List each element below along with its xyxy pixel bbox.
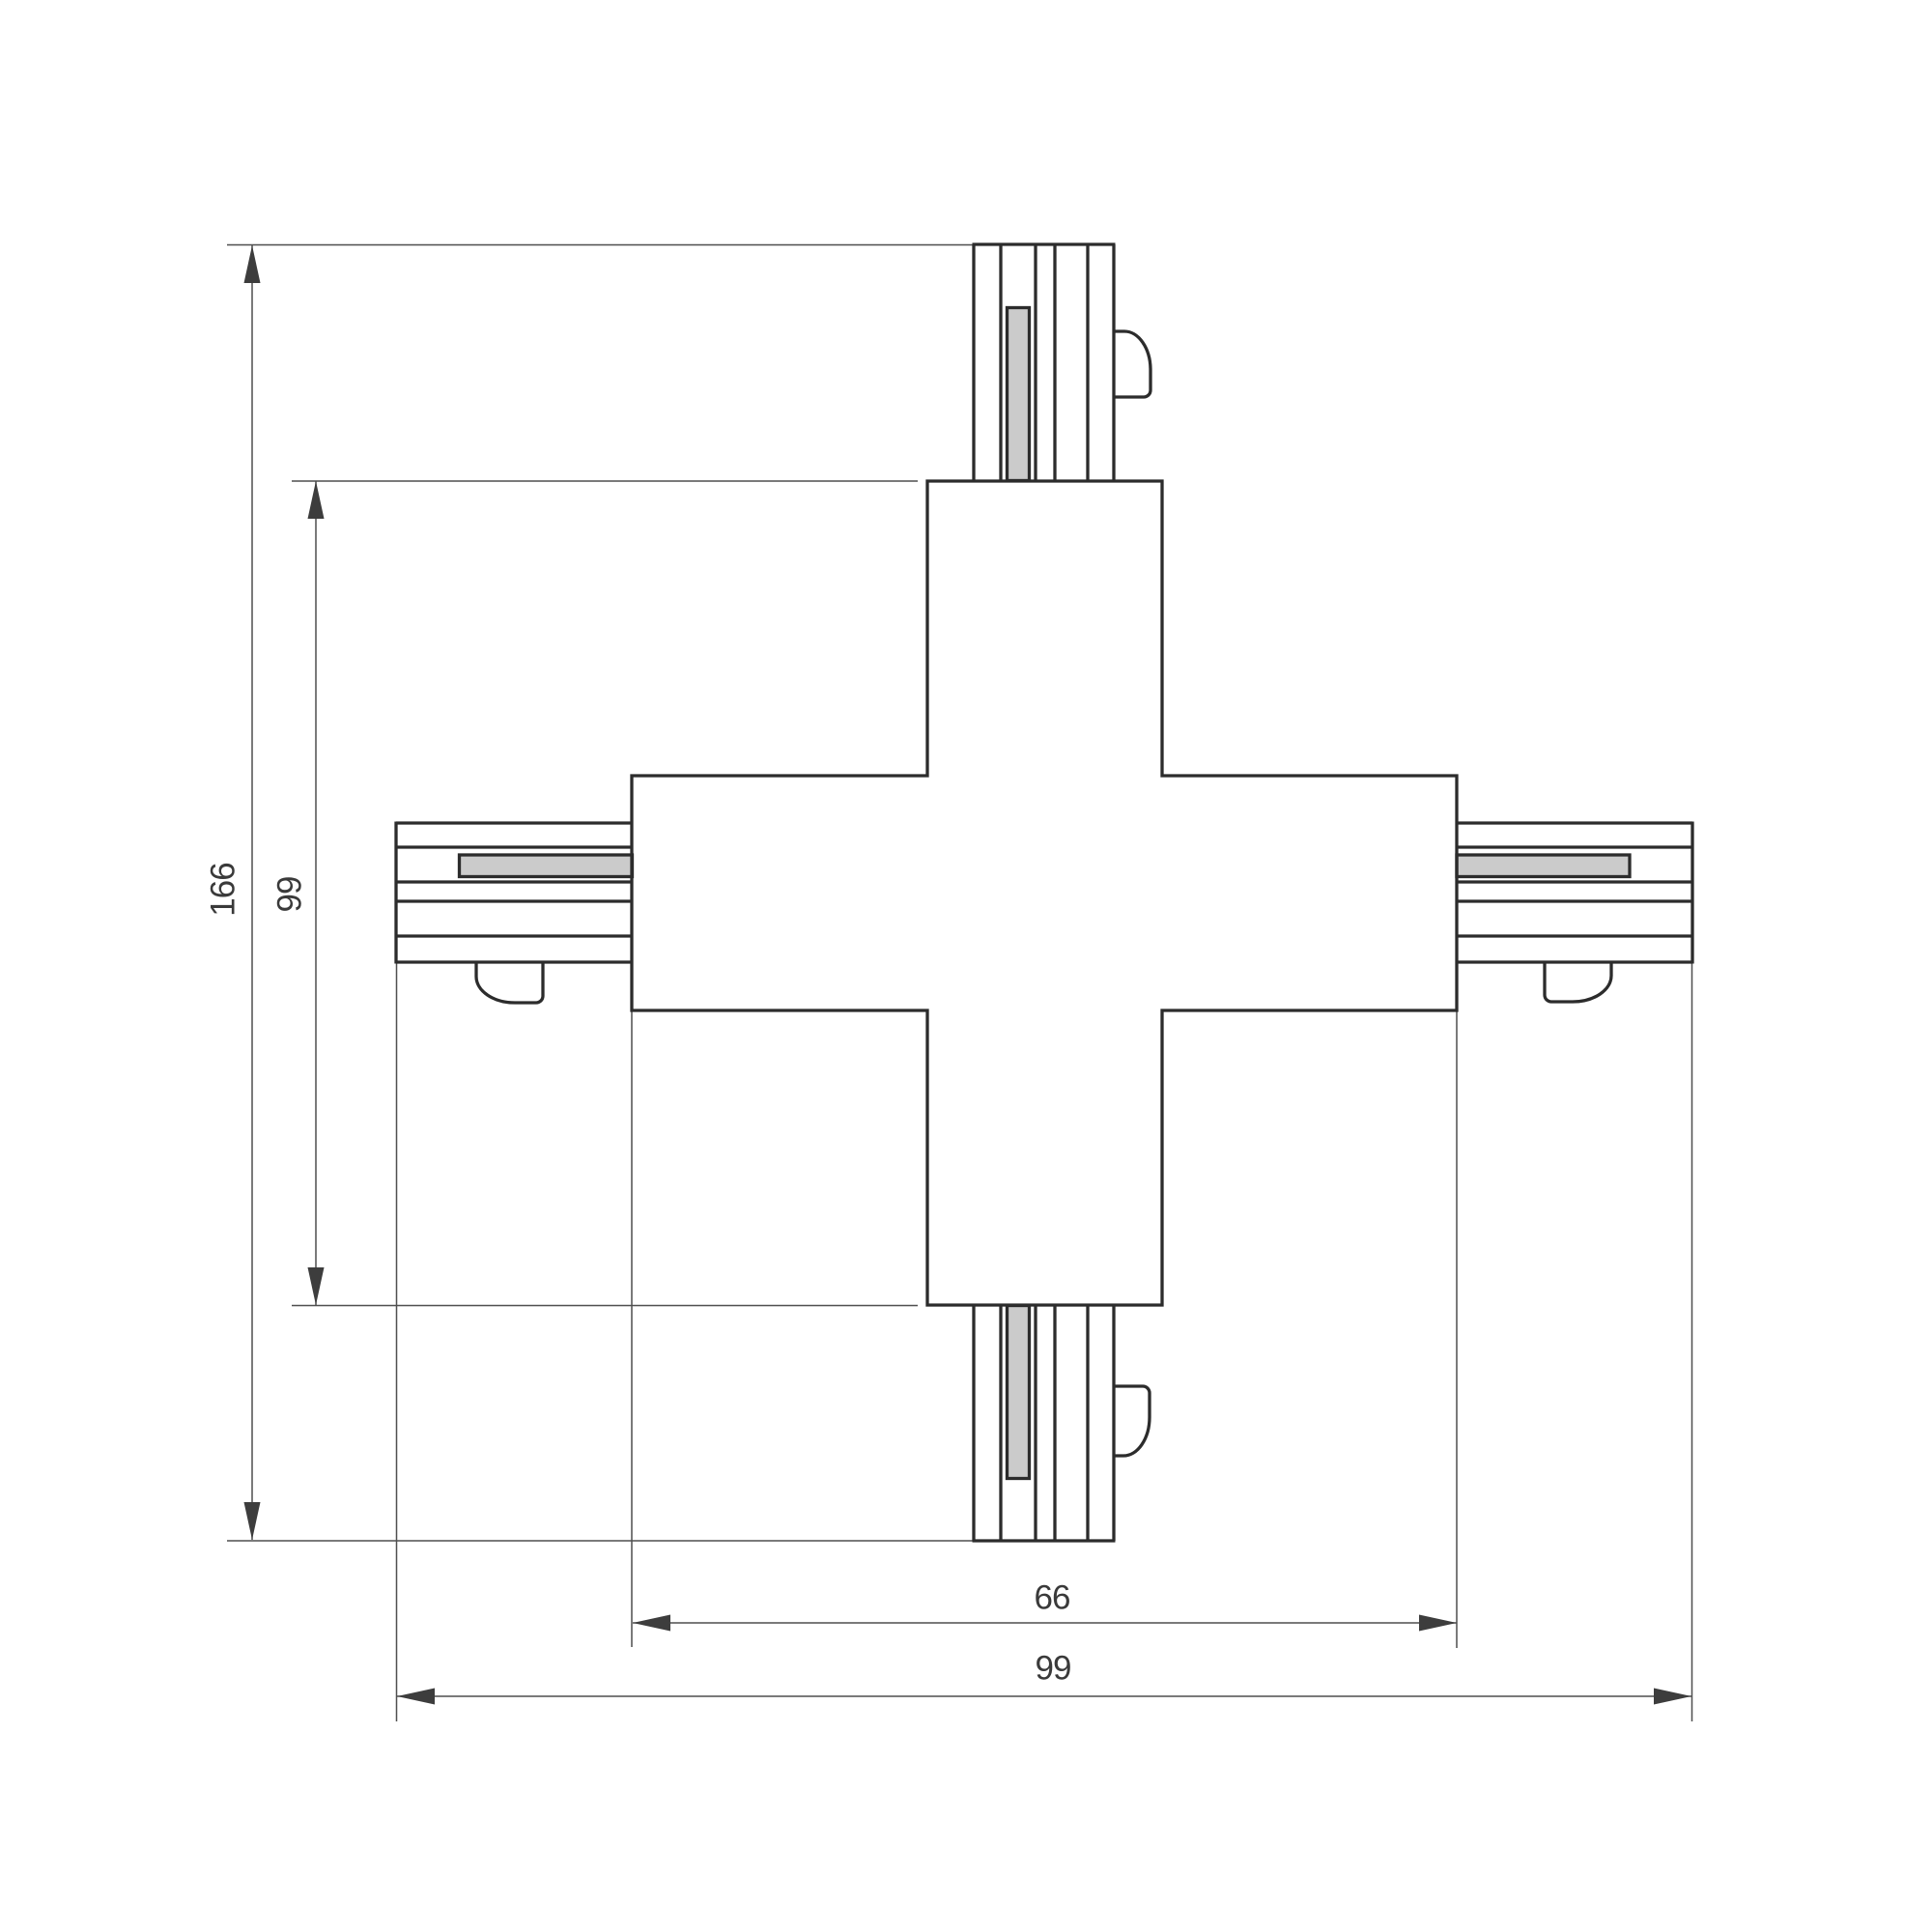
svg-text:166: 166 [205, 863, 242, 916]
svg-text:99: 99 [1036, 1650, 1071, 1688]
svg-text:66: 66 [1035, 1579, 1070, 1617]
svg-text:99: 99 [271, 877, 309, 913]
